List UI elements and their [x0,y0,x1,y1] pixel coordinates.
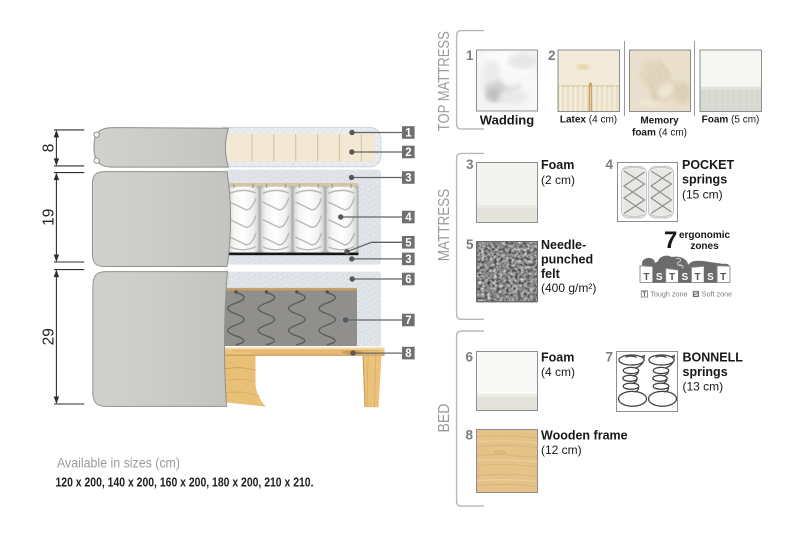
svg-text:T: T [669,272,675,283]
svg-text:8: 8 [40,144,57,153]
svg-text:4: 4 [405,212,412,224]
svg-text:Wooden frame: Wooden frame [541,429,628,443]
svg-text:(15 cm): (15 cm) [682,188,723,202]
svg-text:19: 19 [40,209,57,226]
svg-text:S: S [707,272,714,283]
svg-text:Needle-: Needle- [541,238,586,252]
svg-text:6: 6 [405,274,411,286]
svg-text:Available in sizes (cm): Available in sizes (cm) [57,455,180,471]
svg-text:Wadding: Wadding [480,113,534,128]
svg-text:Soft zone: Soft zone [702,290,732,299]
svg-text:1: 1 [466,48,474,63]
svg-text:TOP MATTRESS: TOP MATTRESS [436,31,453,131]
svg-text:(2 cm): (2 cm) [541,173,575,187]
svg-text:S: S [694,291,699,298]
svg-text:(13 cm): (13 cm) [683,380,724,394]
svg-text:4: 4 [605,157,613,172]
svg-text:punched: punched [541,253,593,267]
svg-text:springs: springs [683,365,728,379]
svg-text:Memory: Memory [640,116,679,127]
svg-text:felt: felt [541,267,561,281]
svg-text:Latex (4 cm): Latex (4 cm) [560,115,617,126]
svg-text:S: S [681,272,688,283]
svg-text:7: 7 [405,315,411,327]
svg-text:7: 7 [664,227,677,254]
svg-text:8: 8 [465,428,473,443]
svg-text:3: 3 [405,173,411,185]
svg-text:29: 29 [40,328,57,345]
svg-text:T: T [642,291,646,298]
svg-text:springs: springs [682,173,727,187]
svg-text:T: T [720,272,726,283]
svg-text:(4 cm): (4 cm) [541,365,575,379]
svg-text:S: S [656,272,663,283]
svg-text:MATTRESS: MATTRESS [436,189,453,262]
svg-text:(12 cm): (12 cm) [541,443,582,457]
svg-text:ergonomic: ergonomic [679,230,731,241]
svg-text:BONNELL: BONNELL [683,351,744,365]
svg-text:Foam: Foam [541,158,574,172]
svg-text:T: T [695,272,701,283]
svg-text:120 x 200, 140 x 200, 160 x 20: 120 x 200, 140 x 200, 160 x 200, 180 x 2… [56,475,314,490]
svg-text:foam (4 cm): foam (4 cm) [632,128,687,139]
svg-text:3: 3 [466,157,474,172]
svg-text:3: 3 [405,254,411,266]
svg-text:Foam (5 cm): Foam (5 cm) [702,115,760,126]
svg-text:T: T [643,272,649,283]
svg-text:5: 5 [405,237,412,249]
svg-text:BED: BED [436,404,453,433]
svg-text:5: 5 [466,237,474,252]
svg-text:7: 7 [605,350,613,365]
svg-text:8: 8 [405,348,412,360]
svg-text:(400 g/m²): (400 g/m²) [541,281,596,295]
svg-text:1: 1 [405,128,412,140]
svg-text:Tough zone: Tough zone [650,290,687,299]
svg-text:2: 2 [405,147,411,159]
svg-text:6: 6 [465,350,473,365]
svg-text:2: 2 [548,48,556,63]
svg-text:POCKET: POCKET [682,158,734,172]
svg-text:Foam: Foam [541,351,574,365]
svg-text:zones: zones [690,241,719,252]
